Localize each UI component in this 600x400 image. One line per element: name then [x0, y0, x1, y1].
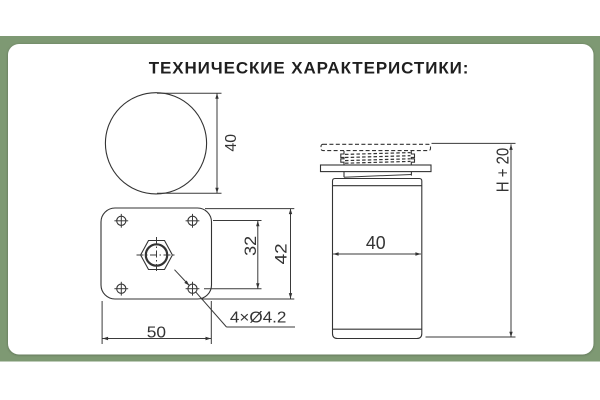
svg-text:H + 20: H + 20	[493, 148, 513, 193]
svg-text:ТЕХНИЧЕСКИЕ ХАРАКТЕРИСТИКИ:: ТЕХНИЧЕСКИЕ ХАРАКТЕРИСТИКИ:	[149, 59, 470, 78]
svg-text:40: 40	[366, 233, 386, 253]
svg-text:4×Ø4.2: 4×Ø4.2	[230, 310, 287, 327]
svg-text:42: 42	[273, 243, 291, 264]
svg-text:50: 50	[147, 324, 167, 341]
svg-text:32: 32	[242, 236, 260, 256]
svg-text:40: 40	[223, 134, 240, 152]
